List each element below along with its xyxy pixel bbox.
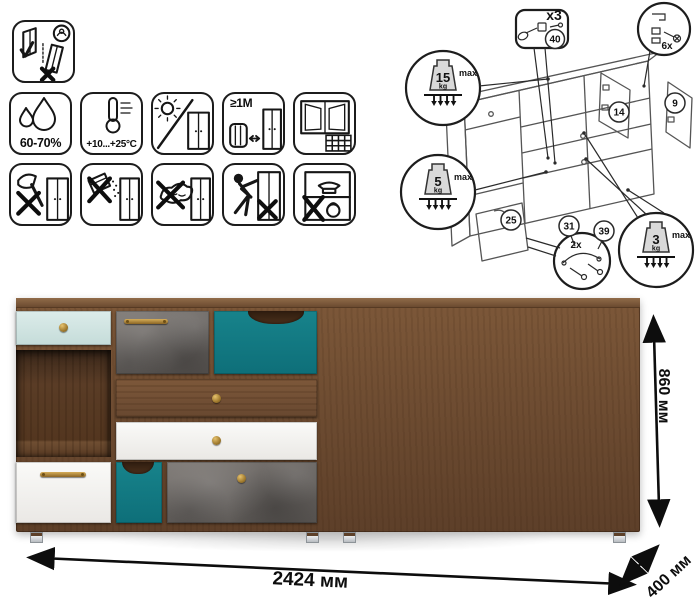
- no-direct-sunlight-icon: [151, 92, 214, 155]
- drawer-knob: [212, 436, 221, 445]
- no-leaning-icon: [222, 163, 285, 226]
- part-14-label: 14: [613, 108, 625, 119]
- part-31-label: 31: [563, 222, 575, 233]
- load-drawer-unit: kg: [652, 246, 660, 253]
- width-dimension-label: 2424 мм: [272, 568, 349, 592]
- part-9-label: 9: [672, 99, 678, 110]
- load-drawer-max: max: [672, 230, 690, 240]
- no-abrasive-powder-icon: [80, 163, 143, 226]
- concrete-door: [116, 311, 209, 374]
- concrete-drawer: [167, 462, 317, 523]
- humidity-icon: 60-70%: [9, 92, 72, 155]
- hinge-count-label: 6x: [661, 41, 673, 52]
- cabinet-foot: [343, 532, 356, 543]
- door-bar-handle: [40, 472, 86, 477]
- radiator-distance-icon: ≥1М: [222, 92, 285, 155]
- load-top-balloon: 15 kg max: [406, 51, 480, 125]
- sideboard-render: [16, 298, 640, 548]
- cabinet-foot: [30, 532, 43, 543]
- hinge-detail-balloon: 6x: [638, 3, 690, 88]
- drawer-knob: [212, 394, 221, 403]
- carry-upright-icon: [12, 20, 75, 83]
- depth-dimension-label: 400 мм: [643, 552, 695, 597]
- part-39-label: 39: [598, 227, 610, 238]
- white-door: [16, 462, 111, 523]
- teal-door-small: [116, 462, 162, 523]
- humidity-label: 60-70%: [11, 136, 70, 150]
- handle-screw-count-label: 2x: [570, 240, 582, 251]
- no-heavy-items-icon: [293, 163, 356, 226]
- cabinet-module-right: [16, 311, 317, 523]
- load-shelf-max: max: [454, 172, 472, 182]
- no-sharp-tools-icon: [9, 163, 72, 226]
- cabinet-foot: [613, 532, 626, 543]
- no-wet-cloth-icon: [151, 163, 214, 226]
- fasteners-balloon: 2x 31 39: [526, 216, 614, 289]
- open-niche: [16, 350, 111, 457]
- cabinet-top-board: [16, 298, 640, 308]
- white-drawer: [116, 422, 317, 460]
- ventilation-window-icon: [293, 92, 356, 155]
- part-40-label: 40: [549, 35, 561, 46]
- product-info-sheet: 60-70% +10...+25°C ≥1М: [0, 0, 700, 597]
- assembly-diagram: x3 40 6x 15 kg max: [398, 0, 700, 295]
- thermometer-icon: +10...+25°C: [80, 92, 143, 155]
- width-dimension-arrow: [30, 558, 633, 585]
- height-dimension-label: 860 мм: [655, 369, 672, 424]
- teal-drawer: [214, 311, 317, 374]
- drawer-cutout-handle: [248, 311, 304, 324]
- multiplier-x3-label: x3: [546, 7, 562, 23]
- drawer-knob: [59, 323, 68, 332]
- mint-drawer: [16, 311, 111, 345]
- temperature-label: +10...+25°C: [82, 139, 141, 150]
- cabinet-foot: [306, 532, 319, 543]
- load-top-unit: kg: [439, 84, 447, 91]
- load-drawer-balloon: 3 kg max: [619, 213, 693, 287]
- door-bar-handle: [124, 319, 168, 324]
- load-shelf-balloon: 5 kg max: [401, 155, 475, 229]
- load-top-max: max: [459, 68, 477, 78]
- drawer-knob: [237, 474, 246, 483]
- height-dimension-arrow: [654, 318, 660, 524]
- load-shelf-unit: kg: [434, 188, 442, 195]
- door-cutout-handle: [122, 462, 154, 474]
- wood-drawer: [116, 379, 317, 417]
- part-25-label: 25: [505, 216, 517, 227]
- cabinet-body: [16, 298, 640, 532]
